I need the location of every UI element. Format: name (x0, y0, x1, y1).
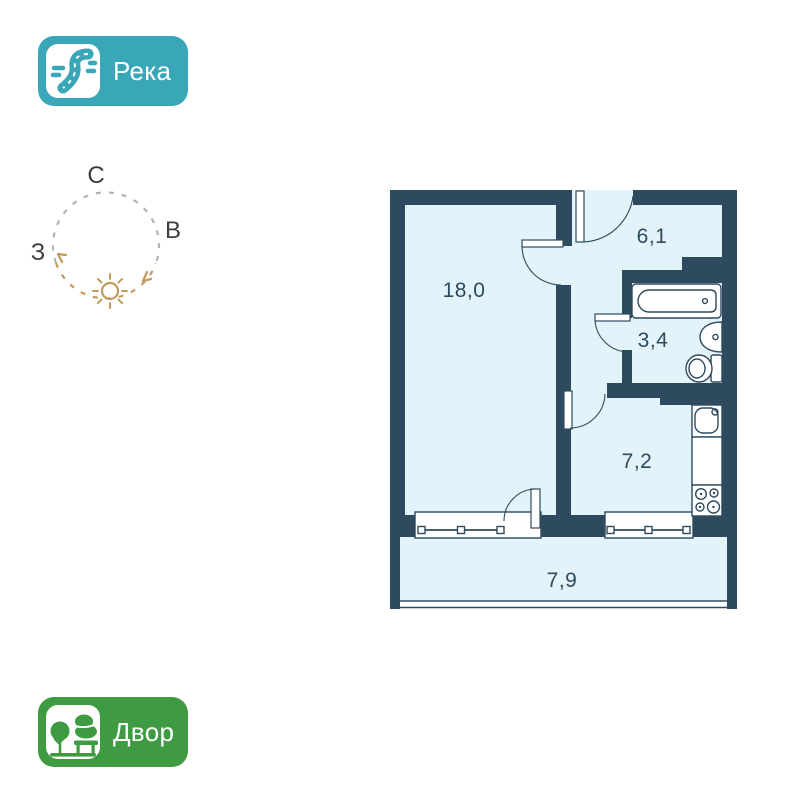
sun-icon (93, 274, 127, 308)
window-kitchen (605, 512, 693, 538)
river-badge-label: Река (113, 56, 171, 87)
area-label-kitchen: 7,2 (622, 450, 653, 473)
trees-bench-icon (46, 705, 100, 759)
compass-west-label: З (31, 239, 46, 266)
river-icon (46, 44, 100, 98)
counter (692, 437, 722, 485)
yard-badge-label: Двор (113, 717, 174, 748)
yard-badge: Двор (38, 697, 188, 767)
compass-east-label: В (165, 217, 181, 244)
balcony-glazing (400, 600, 727, 609)
compass-north-label: С (87, 162, 104, 189)
river-badge: Река (38, 36, 188, 106)
area-label-bathroom: 3,4 (638, 329, 669, 352)
floor-plan: 18,0 6,1 3,4 7,2 7,9 (385, 180, 741, 620)
bathtub (632, 284, 721, 318)
page: { "river_badge": { "label": "Река", "bg_… (0, 0, 800, 800)
yard-icon-tile (46, 705, 100, 759)
kitchen-sink (692, 405, 722, 437)
area-label-hallway: 6,1 (637, 225, 668, 248)
compass: С В З (16, 150, 196, 315)
balcony-wall-right (727, 537, 737, 609)
sun-path-arc (56, 263, 156, 298)
compass-ring (53, 192, 159, 263)
stove (692, 485, 722, 516)
area-label-living-room: 18,0 (443, 279, 486, 302)
window-living-room (415, 512, 541, 538)
area-label-balcony: 7,9 (547, 569, 578, 592)
river-icon-tile (46, 44, 100, 98)
sun-path-arrow-west-icon (58, 254, 66, 262)
balcony-wall-left (390, 537, 400, 609)
toilet (686, 355, 722, 382)
